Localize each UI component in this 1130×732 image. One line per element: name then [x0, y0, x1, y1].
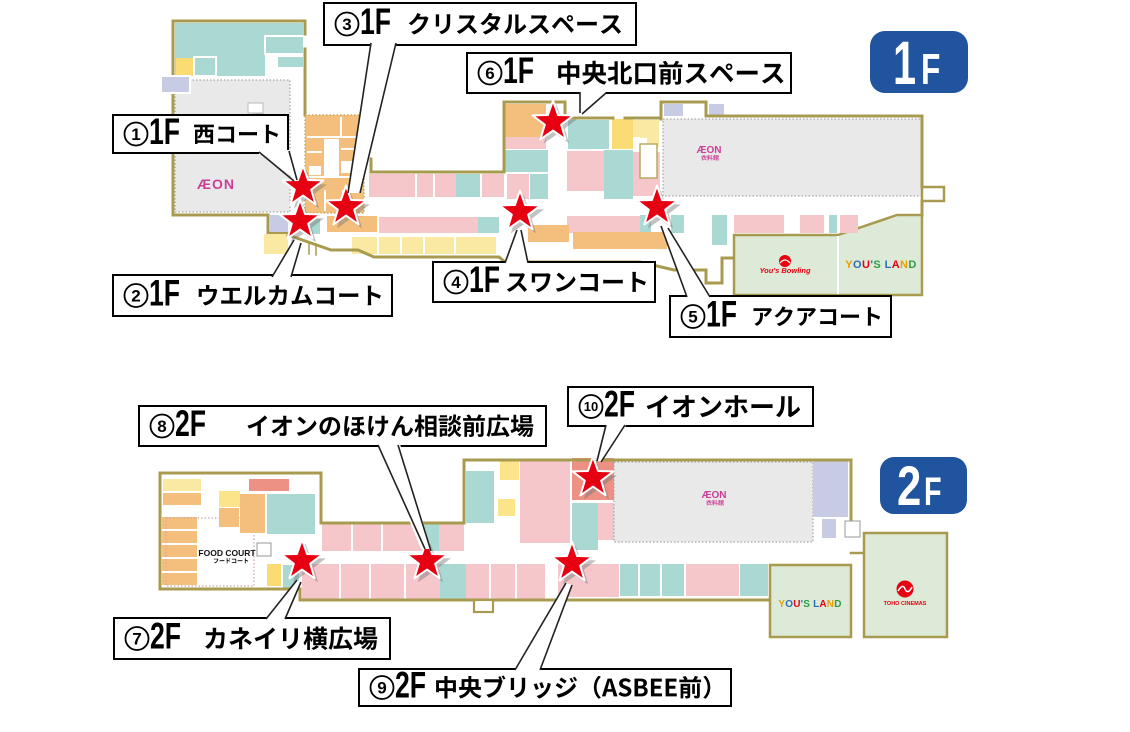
svg-text:ÆON: ÆON [697, 145, 722, 156]
svg-text:2F: 2F [604, 383, 635, 424]
svg-text:3: 3 [342, 15, 351, 34]
svg-text:5: 5 [688, 308, 697, 327]
svg-text:7: 7 [132, 630, 141, 649]
svg-text:2F: 2F [150, 615, 181, 656]
svg-text:1F: 1F [469, 259, 500, 300]
svg-text:1F: 1F [149, 111, 180, 152]
svg-text:You's Bowling: You's Bowling [759, 266, 811, 275]
svg-text:1: 1 [893, 30, 916, 98]
svg-text:YOU'S LAND: YOU'S LAND [778, 599, 841, 610]
svg-text:9: 9 [377, 679, 386, 698]
svg-text:2F: 2F [175, 403, 206, 444]
svg-text:1F: 1F [149, 272, 180, 313]
svg-text:2: 2 [131, 287, 140, 306]
svg-text:6: 6 [485, 64, 494, 83]
svg-text:1F: 1F [706, 293, 737, 334]
svg-text:FOOD COURT: FOOD COURT [198, 548, 256, 558]
svg-text:2: 2 [897, 455, 921, 517]
svg-text:10: 10 [584, 399, 598, 414]
svg-text:1F: 1F [503, 50, 534, 91]
svg-text:F: F [924, 469, 942, 514]
svg-text:YOU'S LAND: YOU'S LAND [845, 259, 917, 271]
svg-text:1: 1 [131, 125, 140, 144]
svg-text:ÆON: ÆON [702, 490, 727, 501]
svg-text:2F: 2F [395, 664, 426, 705]
svg-text:TOHO CINEMAS: TOHO CINEMAS [884, 601, 927, 607]
svg-text:8: 8 [157, 417, 166, 436]
svg-text:ÆON: ÆON [197, 176, 235, 192]
svg-text:1F: 1F [360, 1, 391, 42]
svg-text:F: F [921, 45, 940, 94]
svg-text:4: 4 [451, 273, 461, 292]
